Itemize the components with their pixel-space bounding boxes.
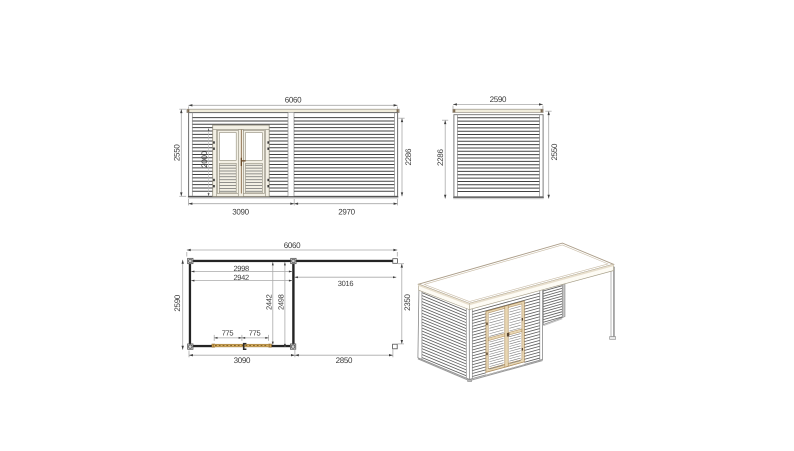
svg-text:2590: 2590 (490, 95, 507, 104)
svg-text:2550: 2550 (173, 144, 182, 161)
svg-text:6060: 6060 (285, 96, 302, 105)
svg-text:3090: 3090 (234, 356, 251, 365)
svg-text:2590: 2590 (173, 294, 182, 311)
svg-text:6060: 6060 (284, 241, 301, 250)
svg-text:775: 775 (222, 328, 234, 337)
svg-text:2942: 2942 (233, 273, 249, 282)
svg-text:2850: 2850 (336, 356, 353, 365)
svg-text:775: 775 (249, 328, 261, 337)
svg-text:2286: 2286 (404, 148, 413, 165)
svg-text:2550: 2550 (550, 143, 559, 160)
svg-text:3016: 3016 (338, 279, 354, 288)
svg-text:2498: 2498 (277, 294, 286, 310)
svg-text:2350: 2350 (403, 293, 412, 310)
svg-text:2970: 2970 (338, 208, 355, 217)
svg-text:2286: 2286 (436, 149, 445, 166)
svg-text:2000: 2000 (200, 150, 209, 167)
svg-text:3090: 3090 (232, 208, 249, 217)
svg-text:2998: 2998 (233, 264, 249, 273)
svg-text:2442: 2442 (265, 294, 274, 310)
